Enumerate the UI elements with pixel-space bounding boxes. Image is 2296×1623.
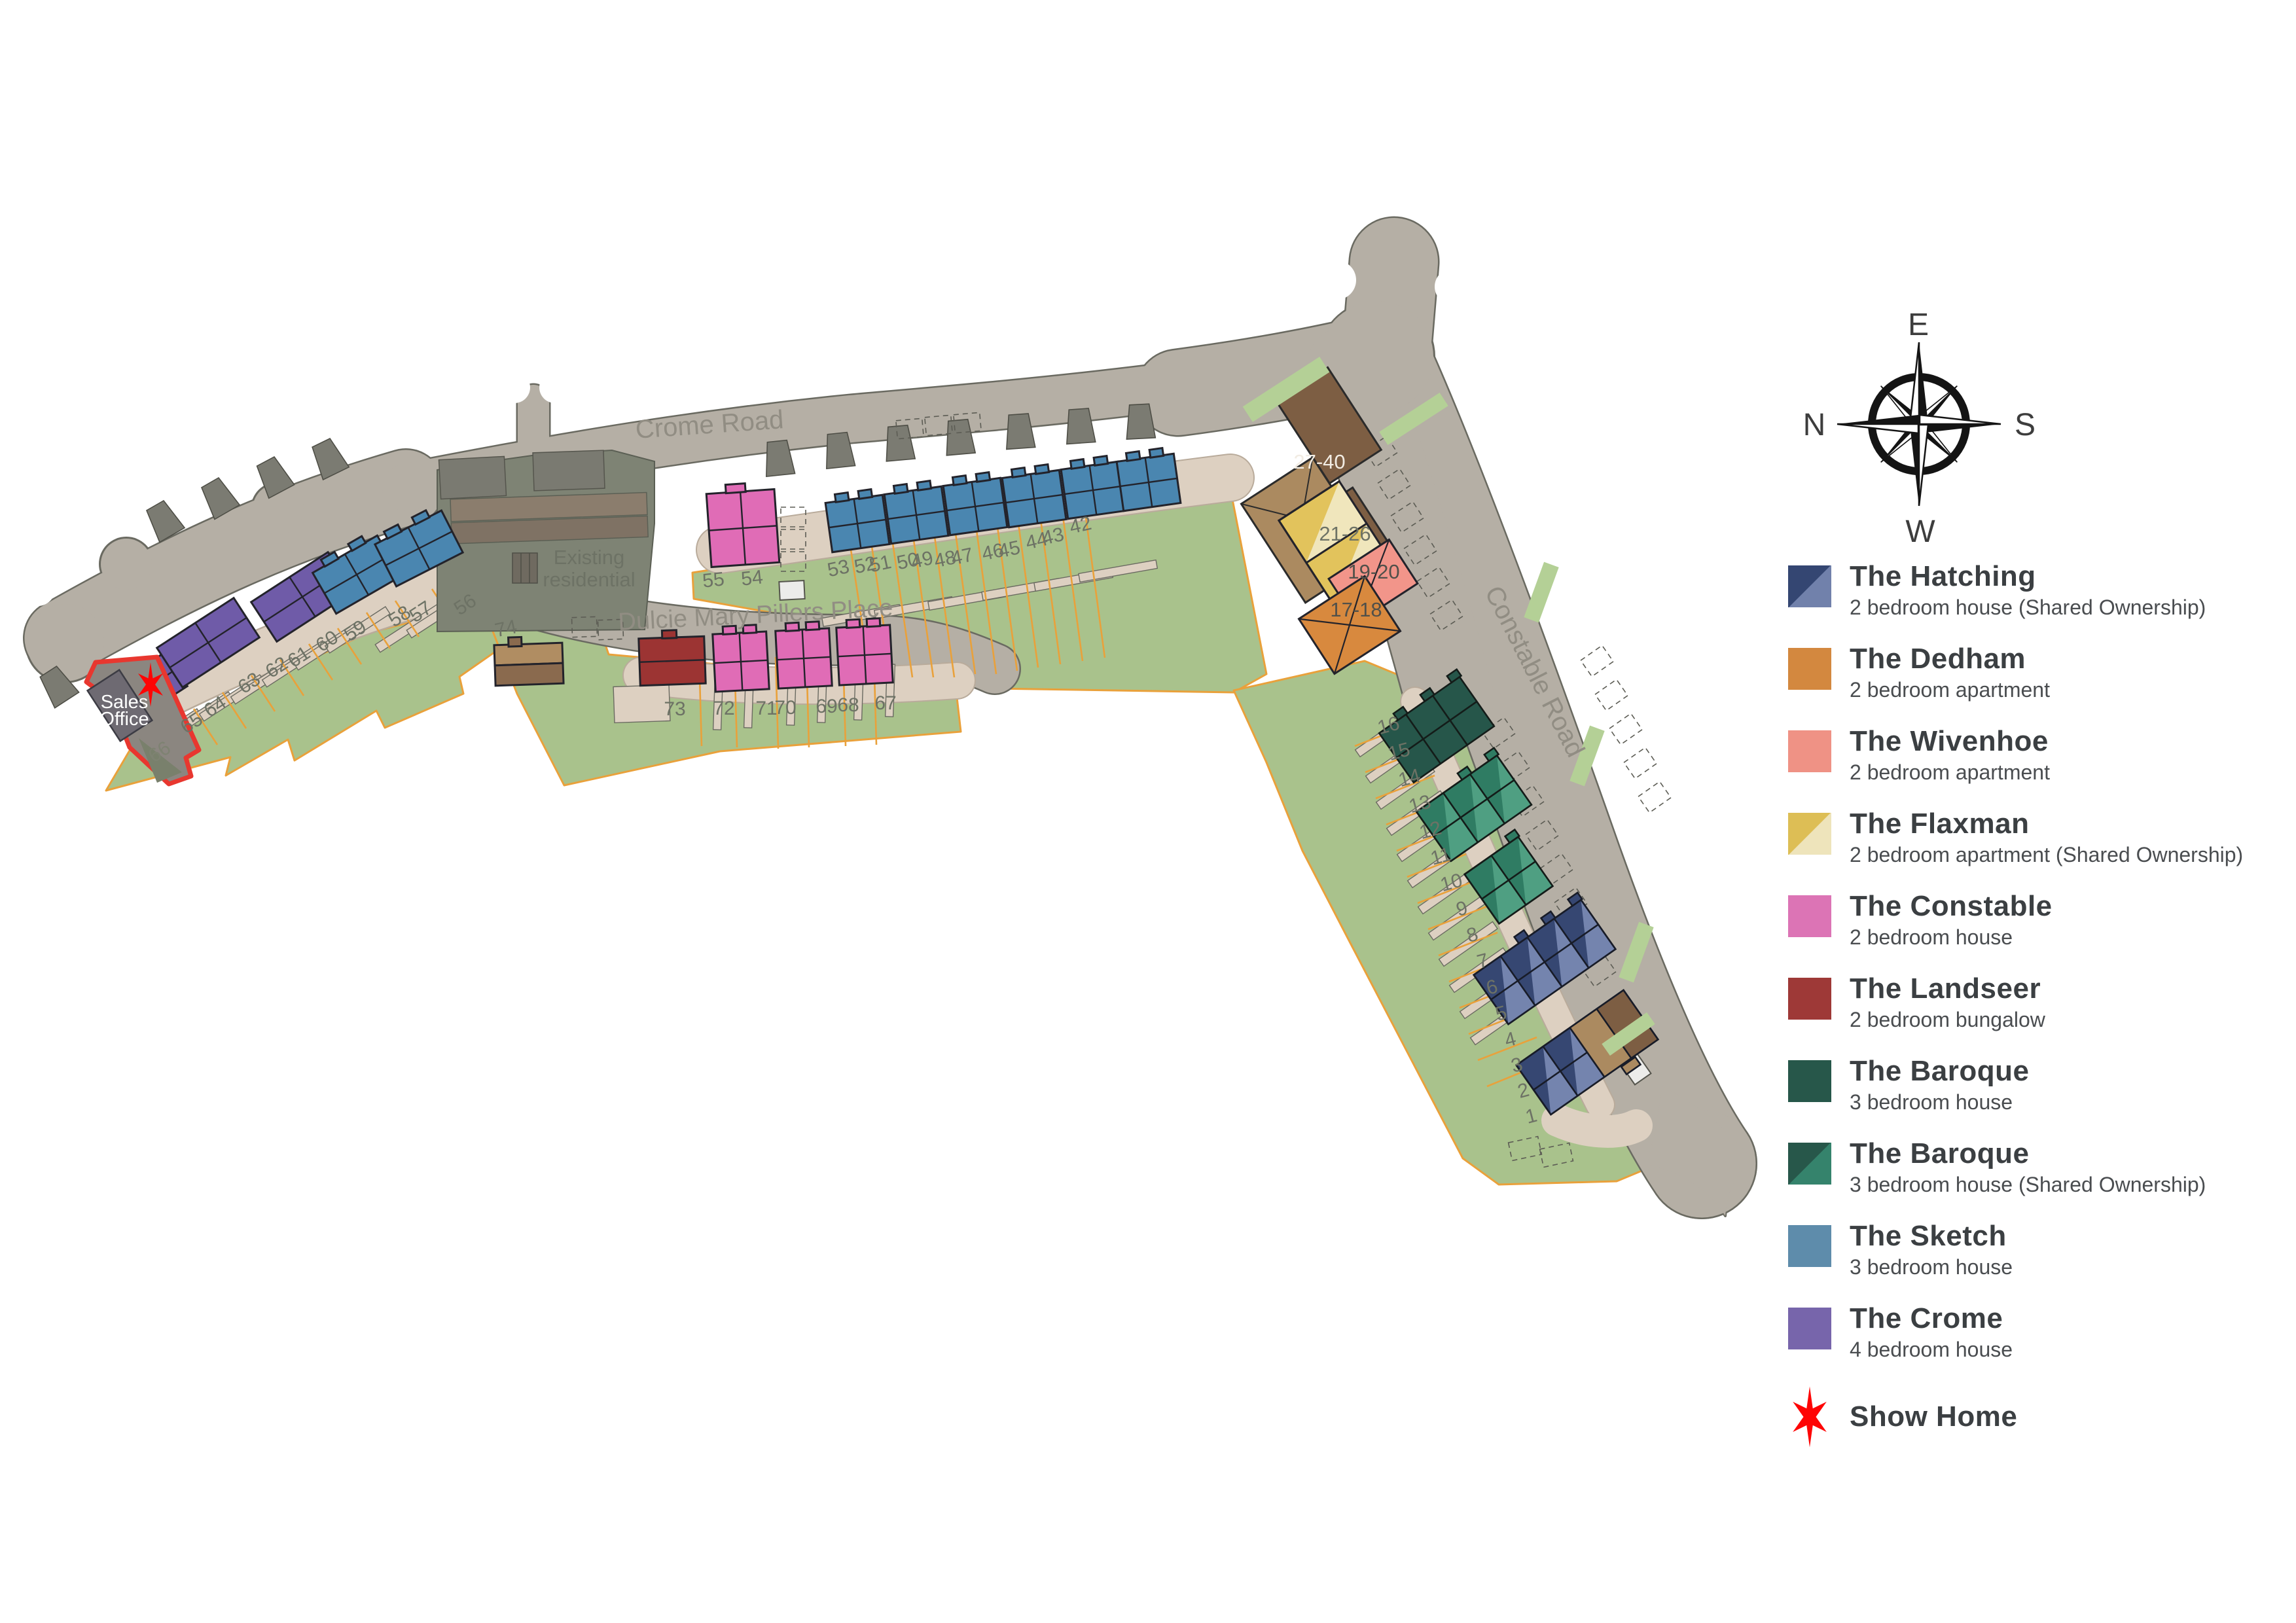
compass-letter-w: W	[1905, 514, 1935, 549]
show-home-label: Show Home	[1850, 1402, 2017, 1432]
landseer-house	[638, 629, 706, 685]
plot-54: 54	[740, 566, 764, 590]
plot-range-19-20: 19-20	[1348, 560, 1399, 583]
plot-69: 69	[816, 696, 837, 717]
legend-swatch	[1788, 813, 1831, 855]
constable-houses-crome-road	[706, 482, 779, 567]
legend-item-desc: 3 bedroom house	[1850, 1091, 2029, 1114]
legend-item-desc: 2 bedroom apartment	[1850, 679, 2050, 702]
legend-item-name: The Crome	[1850, 1304, 2013, 1334]
legend-swatch	[1788, 730, 1831, 772]
legend-item-name: The Wivenhoe	[1850, 726, 2050, 757]
legend-item-name: The Flaxman	[1850, 809, 2243, 839]
show-home-star-icon	[1789, 1385, 1830, 1448]
legend-item: The Flaxman 2 bedroom apartment (Shared …	[1788, 809, 2296, 891]
legend-item: The Dedham 2 bedroom apartment	[1788, 644, 2296, 726]
compass-letter-s: S	[2015, 408, 2036, 442]
legend-item: The Landseer 2 bedroom bungalow	[1788, 974, 2296, 1056]
plot-73: 73	[664, 698, 685, 720]
sales-office-label-2: Office	[99, 709, 149, 730]
legend-swatch	[1788, 565, 1831, 607]
plot-70: 70	[774, 697, 796, 719]
legend-item-name: The Constable	[1850, 891, 2053, 921]
legend-swatch	[1788, 1060, 1831, 1102]
legend-swatch	[1788, 895, 1831, 937]
plot-68: 68	[837, 694, 859, 716]
plot-49: 49	[909, 547, 935, 573]
existing-residential-label-2: residential	[543, 568, 635, 591]
legend-item: The Constable 2 bedroom house	[1788, 891, 2296, 974]
plot-45: 45	[996, 537, 1022, 562]
legend-item: The Crome 4 bedroom house	[1788, 1304, 2296, 1386]
legend-item: The Baroque 3 bedroom house	[1788, 1056, 2296, 1139]
plot-range-17-18: 17-18	[1330, 598, 1382, 621]
legend-item-desc: 3 bedroom house	[1850, 1256, 2013, 1279]
compass-rose	[1837, 342, 2001, 506]
compass-letter-n: N	[1803, 408, 1826, 442]
legend-item-show-home: Show Home	[1788, 1381, 2296, 1453]
site-plan-page: { "page": { "background": "#ffffff" }, "…	[0, 0, 2296, 1623]
legend-item: The Hatching 2 bedroom house (Shared Own…	[1788, 562, 2296, 644]
existing-residential-label-1: Existing	[554, 546, 625, 569]
plot-74: 74	[493, 616, 519, 641]
legend-item-name: The Landseer	[1850, 974, 2045, 1004]
legend-item-name: The Sketch	[1850, 1221, 2013, 1251]
legend-item-desc: 2 bedroom apartment (Shared Ownership)	[1850, 844, 2243, 866]
plot-47: 47	[949, 544, 975, 569]
existing-garages	[512, 553, 537, 583]
plot-range-27-40: 27-40	[1293, 450, 1345, 473]
plot-53: 53	[825, 556, 852, 581]
legend-item-desc: 2 bedroom apartment	[1850, 761, 2050, 784]
plot-range-21-26: 21-26	[1319, 522, 1371, 545]
legend-item-desc: 2 bedroom house (Shared Ownership)	[1850, 596, 2206, 619]
legend-swatch	[1788, 648, 1831, 690]
legend-item-name: The Hatching	[1850, 562, 2206, 592]
legend-item: The Sketch 3 bedroom house	[1788, 1221, 2296, 1304]
legend-item-name: The Baroque	[1850, 1139, 2206, 1169]
plot-67: 67	[874, 692, 896, 714]
plot-55: 55	[702, 568, 726, 592]
legend-list: The Hatching 2 bedroom house (Shared Own…	[1788, 562, 2296, 1386]
legend-item-desc: 3 bedroom house (Shared Ownership)	[1850, 1173, 2206, 1196]
legend-item-desc: 2 bedroom bungalow	[1850, 1008, 2045, 1031]
legend-swatch	[1788, 1308, 1831, 1349]
legend-swatch	[1788, 1143, 1831, 1185]
plot-72: 72	[713, 698, 734, 719]
legend-item-desc: 4 bedroom house	[1850, 1338, 2013, 1361]
legend-swatch	[1788, 978, 1831, 1020]
legend-item: The Baroque 3 bedroom house (Shared Owne…	[1788, 1139, 2296, 1221]
legend-swatch	[1788, 1225, 1831, 1267]
legend-item-name: The Baroque	[1850, 1056, 2029, 1086]
legend: The Hatching 2 bedroom house (Shared Own…	[1788, 562, 2296, 1453]
plot-51: 51	[867, 551, 893, 577]
compass-letter-e: E	[1908, 308, 1929, 342]
legend-item-name: The Dedham	[1850, 644, 2050, 674]
legend-item: The Wivenhoe 2 bedroom apartment	[1788, 726, 2296, 809]
legend-item-desc: 2 bedroom house	[1850, 926, 2053, 949]
